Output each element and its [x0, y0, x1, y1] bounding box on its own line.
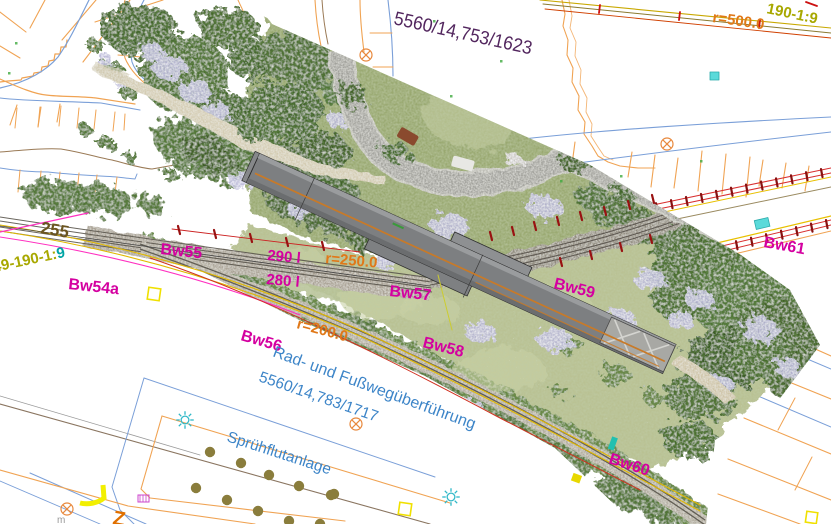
- svg-text:r=500.0: r=500.0: [711, 9, 765, 33]
- svg-text:290 l: 290 l: [267, 247, 302, 267]
- svg-text:Bw61: Bw61: [762, 234, 806, 258]
- svg-text:Bw54a: Bw54a: [68, 276, 120, 298]
- svg-text:49-190-1:9: 49-190-1:9: [0, 244, 67, 276]
- svg-text:5560/14,753/1623: 5560/14,753/1623: [392, 8, 534, 59]
- svg-text:280 l: 280 l: [266, 271, 301, 291]
- svg-text:m: m: [57, 515, 65, 524]
- svg-text:Z: Z: [111, 507, 127, 524]
